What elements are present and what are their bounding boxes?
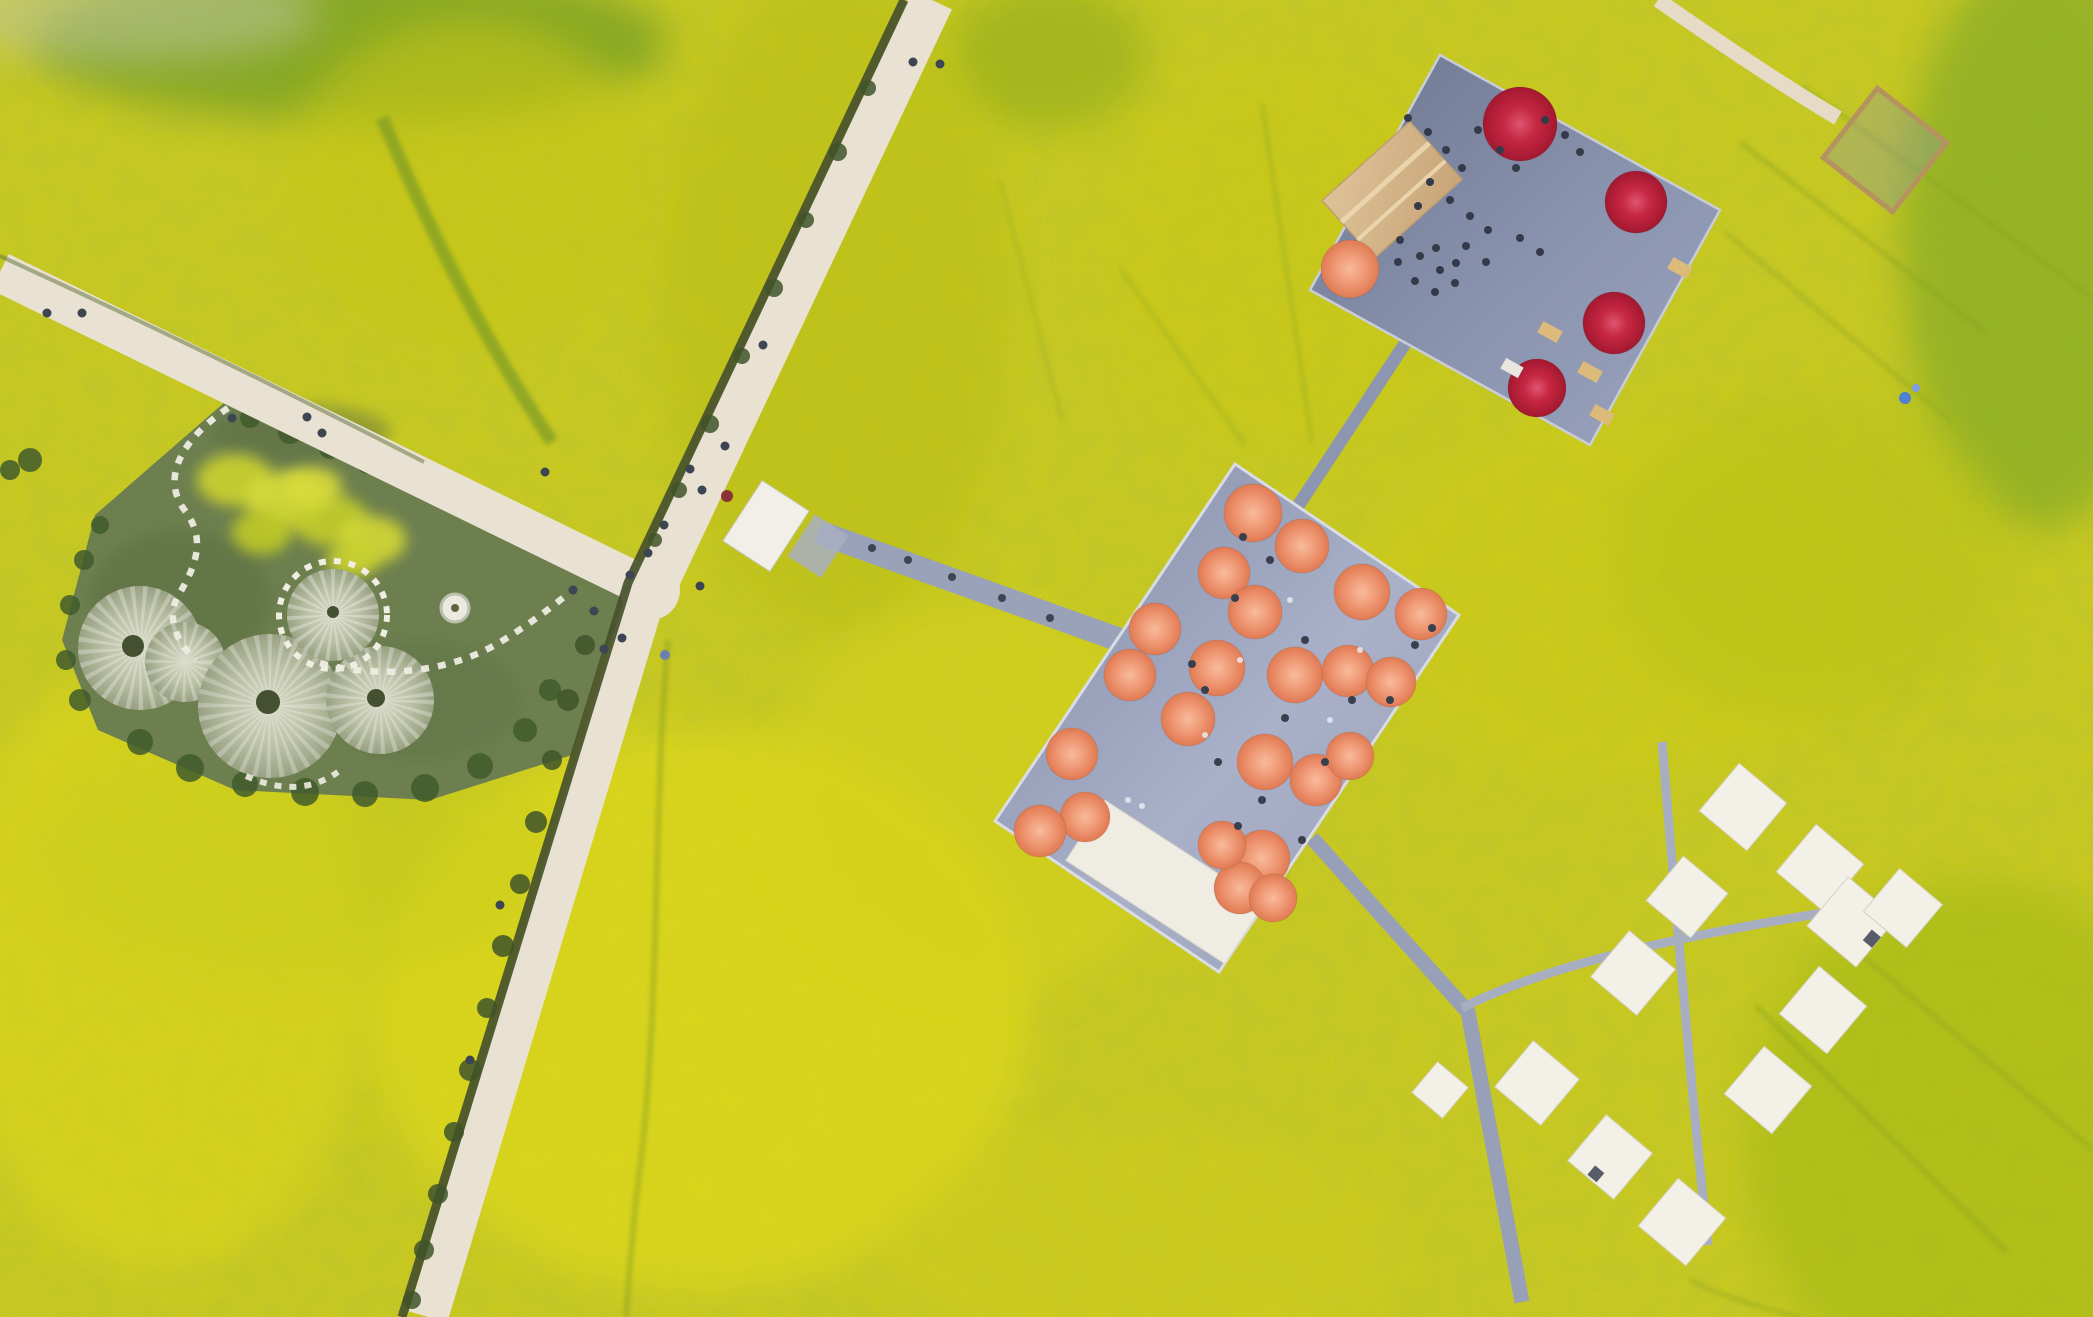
aerial-photo-rapeseed-fields: Aerial drone view of bright yellow rapes… — [0, 0, 2093, 1317]
scene-svg — [0, 0, 2093, 1317]
